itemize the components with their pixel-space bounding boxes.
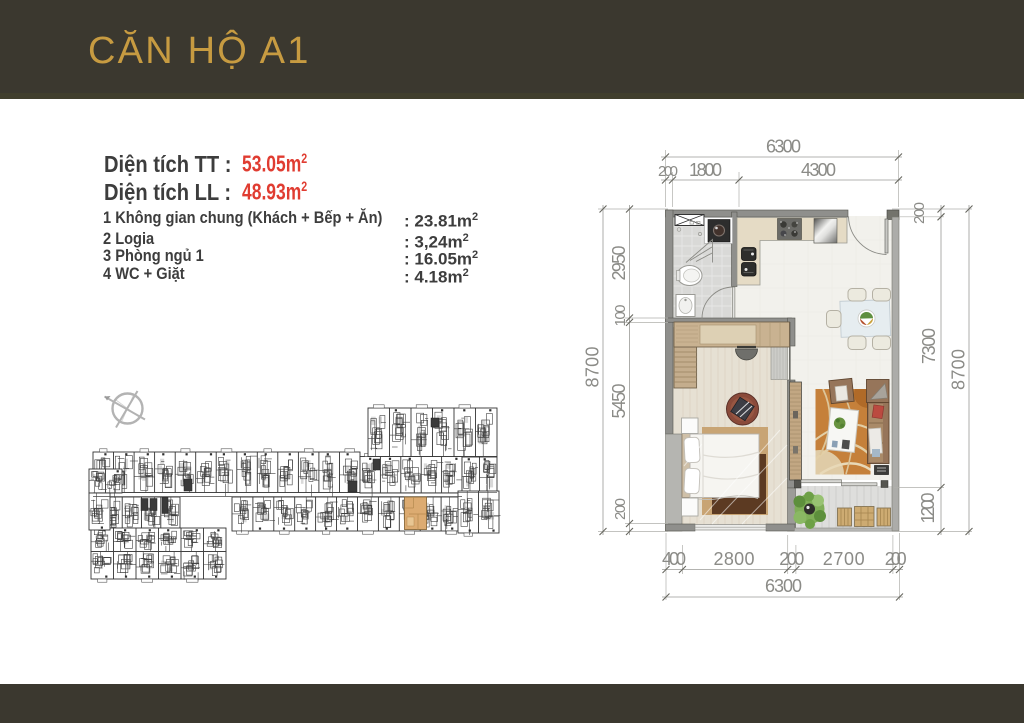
svg-text:8700: 8700	[583, 347, 603, 388]
svg-text:200: 200	[885, 549, 907, 569]
svg-text:2700: 2700	[823, 549, 865, 569]
svg-text:400: 400	[662, 549, 686, 569]
svg-text:200: 200	[658, 163, 678, 180]
svg-text:100: 100	[612, 305, 629, 327]
svg-text:5450: 5450	[609, 384, 629, 419]
svg-text:1200: 1200	[918, 493, 938, 524]
svg-text:2800: 2800	[714, 549, 755, 569]
svg-text:8700: 8700	[949, 349, 969, 390]
svg-text:6300: 6300	[765, 576, 802, 596]
svg-text:1800: 1800	[689, 160, 722, 180]
svg-text:7300: 7300	[919, 328, 939, 364]
svg-text:4300: 4300	[801, 160, 836, 180]
svg-text:200: 200	[612, 498, 629, 520]
svg-text:200: 200	[779, 549, 804, 569]
svg-text:6300: 6300	[766, 137, 801, 157]
svg-text:2950: 2950	[609, 246, 629, 281]
svg-text:200: 200	[911, 202, 928, 224]
